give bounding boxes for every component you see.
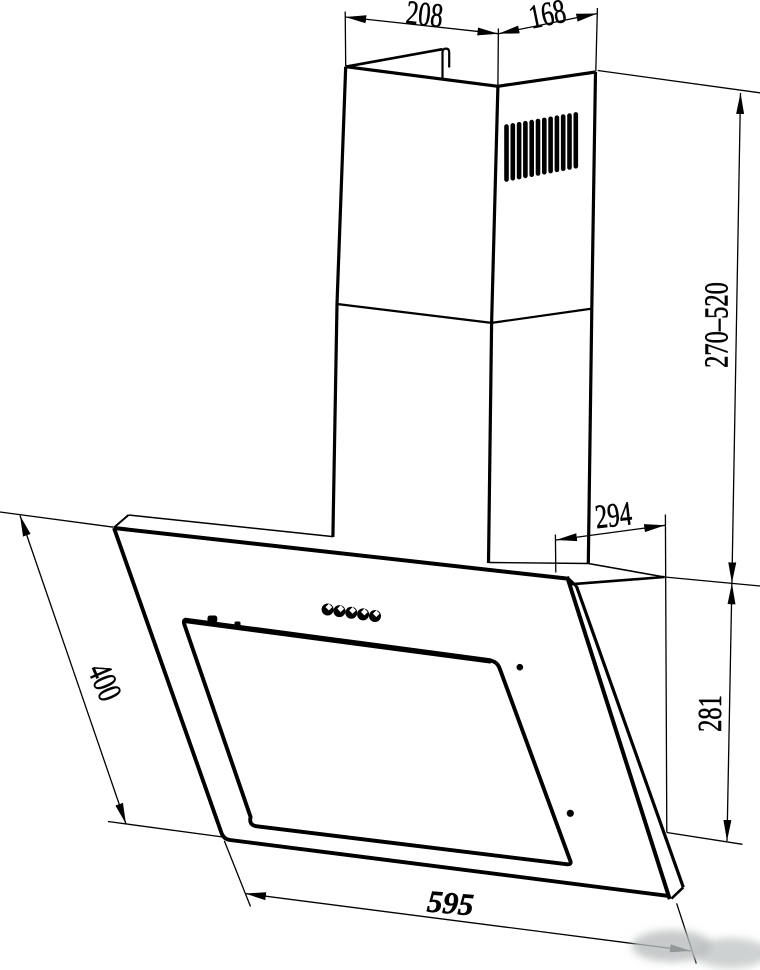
svg-text:281: 281 xyxy=(692,695,729,732)
svg-text:270–520: 270–520 xyxy=(699,282,736,368)
svg-text:595: 595 xyxy=(426,884,475,923)
svg-text:208: 208 xyxy=(404,0,444,35)
svg-text:294: 294 xyxy=(593,496,634,537)
